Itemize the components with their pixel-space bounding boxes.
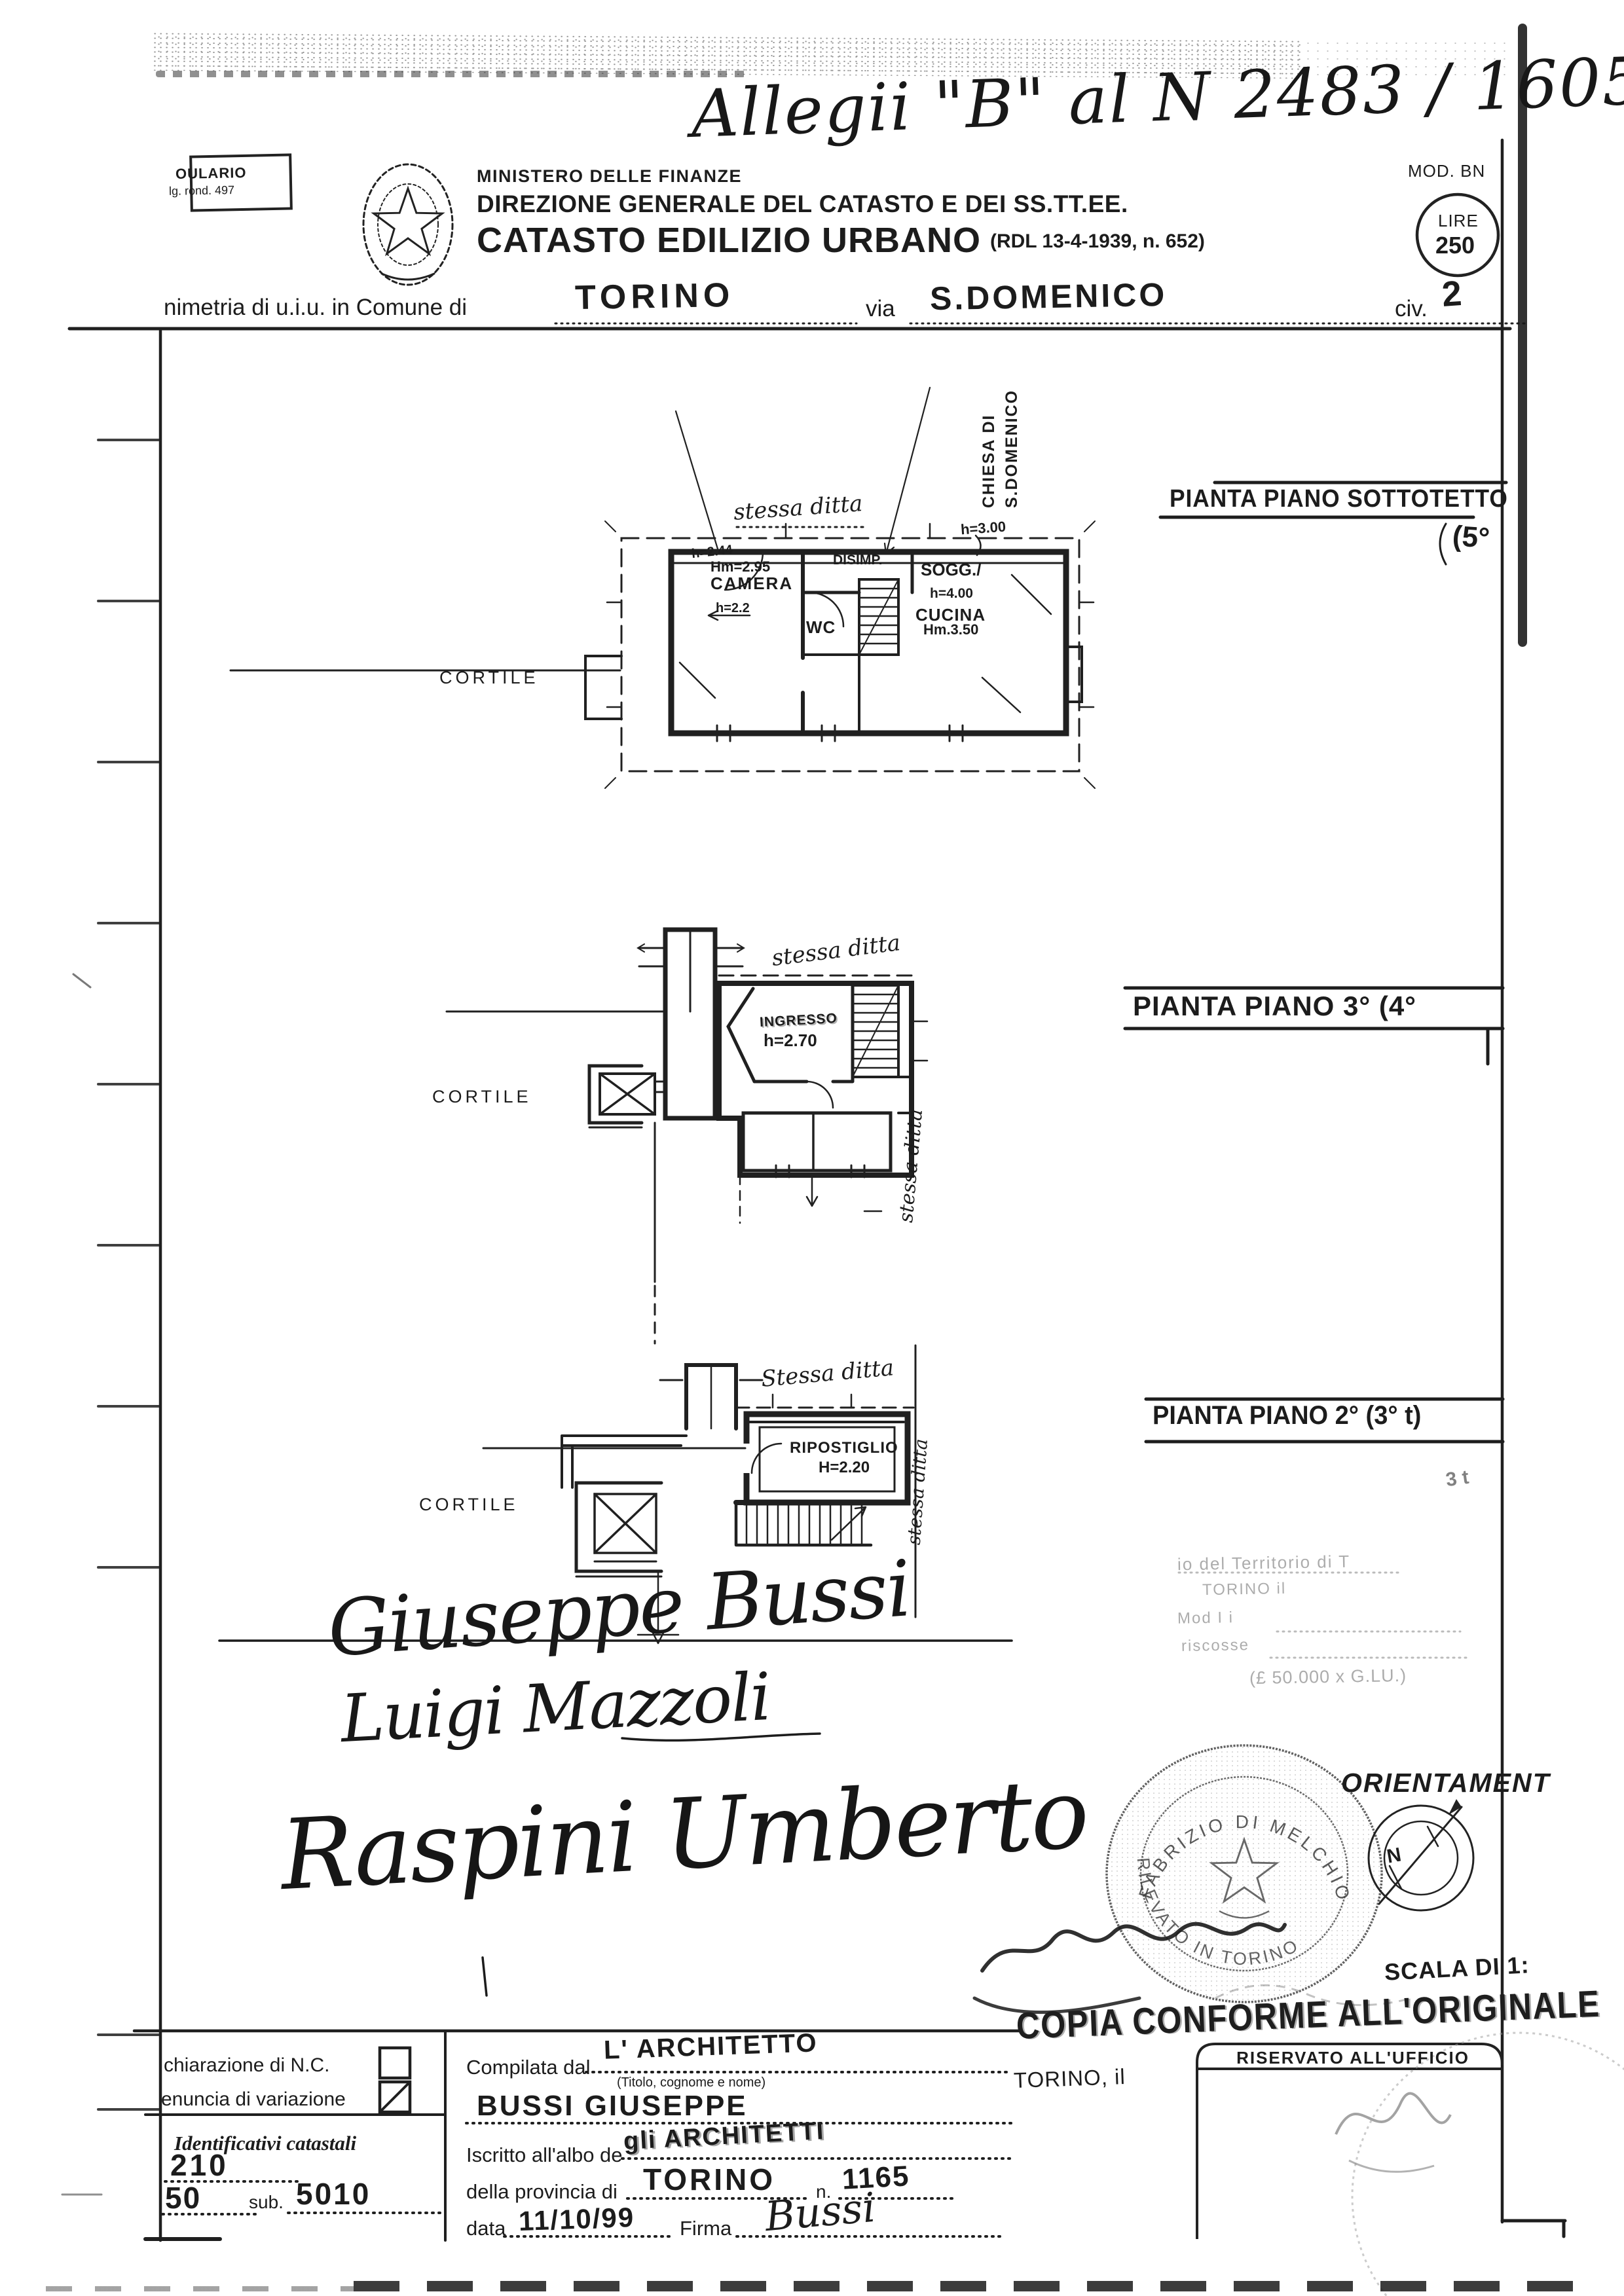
plan1-room-soggiorno: SOGG./: [921, 560, 981, 580]
plan1-floor-note: (5°: [1451, 520, 1490, 555]
civ-handwritten: 2: [1441, 273, 1463, 315]
plan2-courtyard-label: CORTILE: [432, 1087, 532, 1107]
plan-label-boxes: [1125, 483, 1506, 1442]
ministry-title: MINISTERO DELLE FINANZE: [477, 166, 742, 187]
provincia-handwritten: TORINO: [643, 2162, 775, 2197]
plan3-floor-note: 3 t: [1445, 1467, 1470, 1492]
via-label: via: [866, 296, 895, 322]
sub-handwritten: 5010: [296, 2176, 371, 2212]
foglio-handwritten: 210: [170, 2147, 229, 2183]
riservato-ufficio-header: RISERVATO ALL'UFFICIO: [1209, 2048, 1497, 2068]
modulario-stamp-line2: lg. rond. 497: [169, 183, 234, 198]
plan1-room-disimpegno: DISIMP.: [833, 553, 882, 568]
plan3-ripostiglio-height: H=2.20: [819, 1459, 870, 1477]
directorate-title: DIREZIONE GENERALE DEL CATASTO E DEI SS.…: [477, 191, 1128, 218]
plan3-courtyard-label: CORTILE: [419, 1495, 519, 1515]
plan1-cucina-height: Hm.3.50: [923, 621, 978, 638]
document-title: CATASTO EDILIZIO URBANO(RDL 13-4-1939, n…: [477, 220, 1205, 261]
plan1-title: PIANTA PIANO SOTTOTETTO: [1170, 485, 1508, 513]
plan1-church-label-line2: S.DOMENICO: [1003, 371, 1022, 508]
location-line-prefix: nimetria di u.i.u. in Comune di: [164, 295, 467, 321]
mod-bn-label: MOD. BN: [1408, 161, 1485, 181]
territory-stamp-line3: Mod I i: [1177, 1609, 1234, 1628]
territory-stamp-line2: TORINO il: [1202, 1580, 1287, 1599]
titolo-note: (Titolo, cognome e nome): [617, 2075, 766, 2090]
state-emblem-icon: [363, 164, 452, 285]
comune-handwritten: TORINO: [574, 276, 734, 318]
photocopy-bottom-edge: [354, 2281, 1598, 2291]
scanned-cadastral-document: FABRIZIO DI MELCHIORRE RILEVATO IN TORIN…: [0, 0, 1624, 2296]
plan2-title: PIANTA PIANO 3° (4°: [1133, 991, 1416, 1022]
variazione-label: enuncia di variazione: [161, 2088, 346, 2111]
plan1-height-400: h=4.00: [930, 586, 973, 602]
plan1-courtyard-label: CORTILE: [439, 668, 539, 688]
compilata-label: Compilata dal: [466, 2056, 591, 2079]
document-linework: FABRIZIO DI MELCHIORRE RILEVATO IN TORIN…: [0, 0, 1624, 2296]
territory-stamp-line1: io del Territorio di T: [1177, 1552, 1351, 1575]
territory-stamp-line5: (£ 50.000 x G.LU.): [1249, 1666, 1407, 1688]
plan1-church-label-line1: CHIESA DI: [980, 371, 999, 508]
plan3-title: PIANTA PIANO 2° (3° t): [1153, 1401, 1421, 1430]
plan3-room-ripostiglio: RIPOSTIGLIO: [790, 1439, 898, 1457]
photocopy-bottom-edge-left: [46, 2286, 354, 2291]
plan1-room-camera: CAMERA: [710, 574, 793, 594]
iscritto-label: Iscritto all'albo de: [466, 2143, 623, 2167]
floor-plan-piano3-drawing: [447, 930, 927, 1343]
plan1-eaves-height: h=3.00: [960, 519, 1006, 539]
torino-il-label: TORINO, il: [1013, 2064, 1126, 2093]
compass-orientation-icon: [1369, 1799, 1473, 1910]
plan1-height-22: h=2.2: [716, 601, 750, 616]
dichiarazione-label: chiarazione di N.C.: [164, 2054, 329, 2077]
plan1-room-wc: WC: [806, 617, 836, 638]
provincia-label: della provincia di: [466, 2180, 618, 2204]
particella-handwritten: 50: [165, 2180, 201, 2215]
modulario-stamp-line1: OULARIO: [175, 164, 247, 183]
firma-label: Firma: [680, 2217, 731, 2240]
plan2-ingresso-height: h=2.70: [764, 1030, 817, 1051]
lire-value: 250: [1435, 232, 1475, 259]
orientamento-label: ORIENTAMENT: [1341, 1768, 1551, 1798]
document-title-text: CATASTO EDILIZIO URBANO: [477, 221, 981, 260]
sub-label: sub.: [249, 2192, 284, 2213]
data-handwritten: 11/10/99: [518, 2202, 635, 2237]
firma-signature: Bussi: [763, 2183, 877, 2240]
nome-handwritten: BUSSI GIUSEPPE: [477, 2090, 748, 2123]
lire-label: LIRE: [1438, 211, 1479, 231]
document-title-reference: (RDL 13-4-1939, n. 652): [990, 230, 1205, 252]
data-label: data: [466, 2217, 506, 2240]
via-handwritten: S.DOMENICO: [930, 276, 1168, 318]
territory-stamp-line4: riscosse: [1181, 1636, 1250, 1656]
plan1-church-label: CHIESA DI S.DOMENICO: [980, 371, 1022, 508]
civ-label: civ.: [1395, 296, 1428, 322]
